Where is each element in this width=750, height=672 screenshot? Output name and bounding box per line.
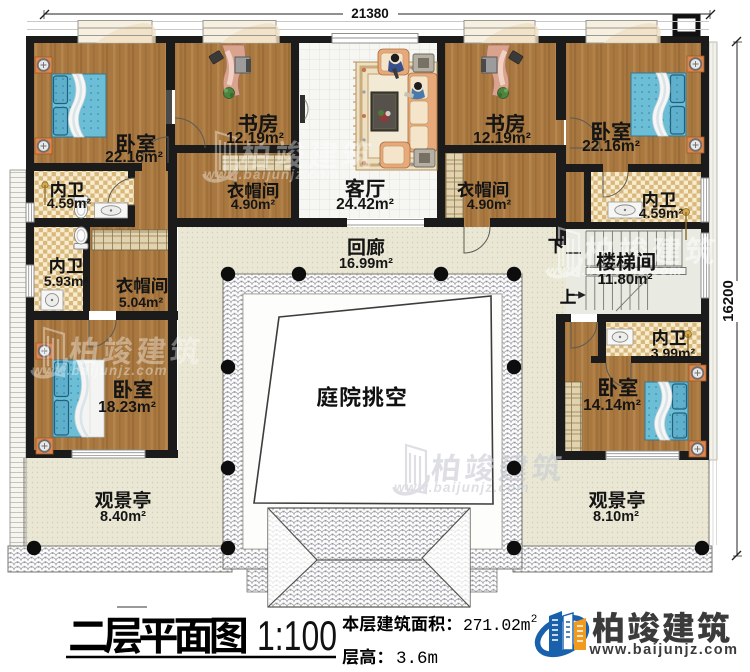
svg-text:www.baijunjz.com: www.baijunjz.com [204,167,340,182]
svg-text:4.59m²: 4.59m² [47,195,92,211]
svg-text:12.19m²: 12.19m² [226,130,284,147]
svg-text:www.baijunjz.com: www.baijunjz.com [394,480,530,495]
svg-text:5.93m²: 5.93m² [44,273,89,289]
svg-text:24.42m²: 24.42m² [336,196,394,213]
svg-text:18.23m²: 18.23m² [98,399,156,416]
svg-text:4.90m²: 4.90m² [467,196,512,212]
svg-text:16.99m²: 16.99m² [339,256,393,272]
svg-text:271.02m: 271.02m [463,616,531,635]
svg-text:8.40m²: 8.40m² [100,509,146,525]
svg-text:22.16m²: 22.16m² [105,149,163,166]
svg-text:3.6m: 3.6m [396,649,438,669]
svg-text:21380: 21380 [351,6,389,21]
svg-text:4.90m²: 4.90m² [231,196,276,212]
svg-text:www.baijunjz.com: www.baijunjz.com [588,642,738,658]
svg-text:2: 2 [531,614,538,626]
svg-text:11.80m²: 11.80m² [597,271,652,288]
svg-text:1:100: 1:100 [257,612,337,659]
svg-text:4.59m²: 4.59m² [639,205,684,221]
svg-text:www.baijunjz.com: www.baijunjz.com [32,363,168,378]
svg-text:12.19m²: 12.19m² [473,130,531,147]
svg-text:5.04m²: 5.04m² [119,294,164,310]
svg-text:8.10m²: 8.10m² [593,509,639,525]
svg-text:16200: 16200 [720,280,737,322]
svg-text:22.16m²: 22.16m² [582,138,640,155]
svg-text:3.99m²: 3.99m² [651,345,696,361]
svg-text:14.14m²: 14.14m² [583,397,641,414]
